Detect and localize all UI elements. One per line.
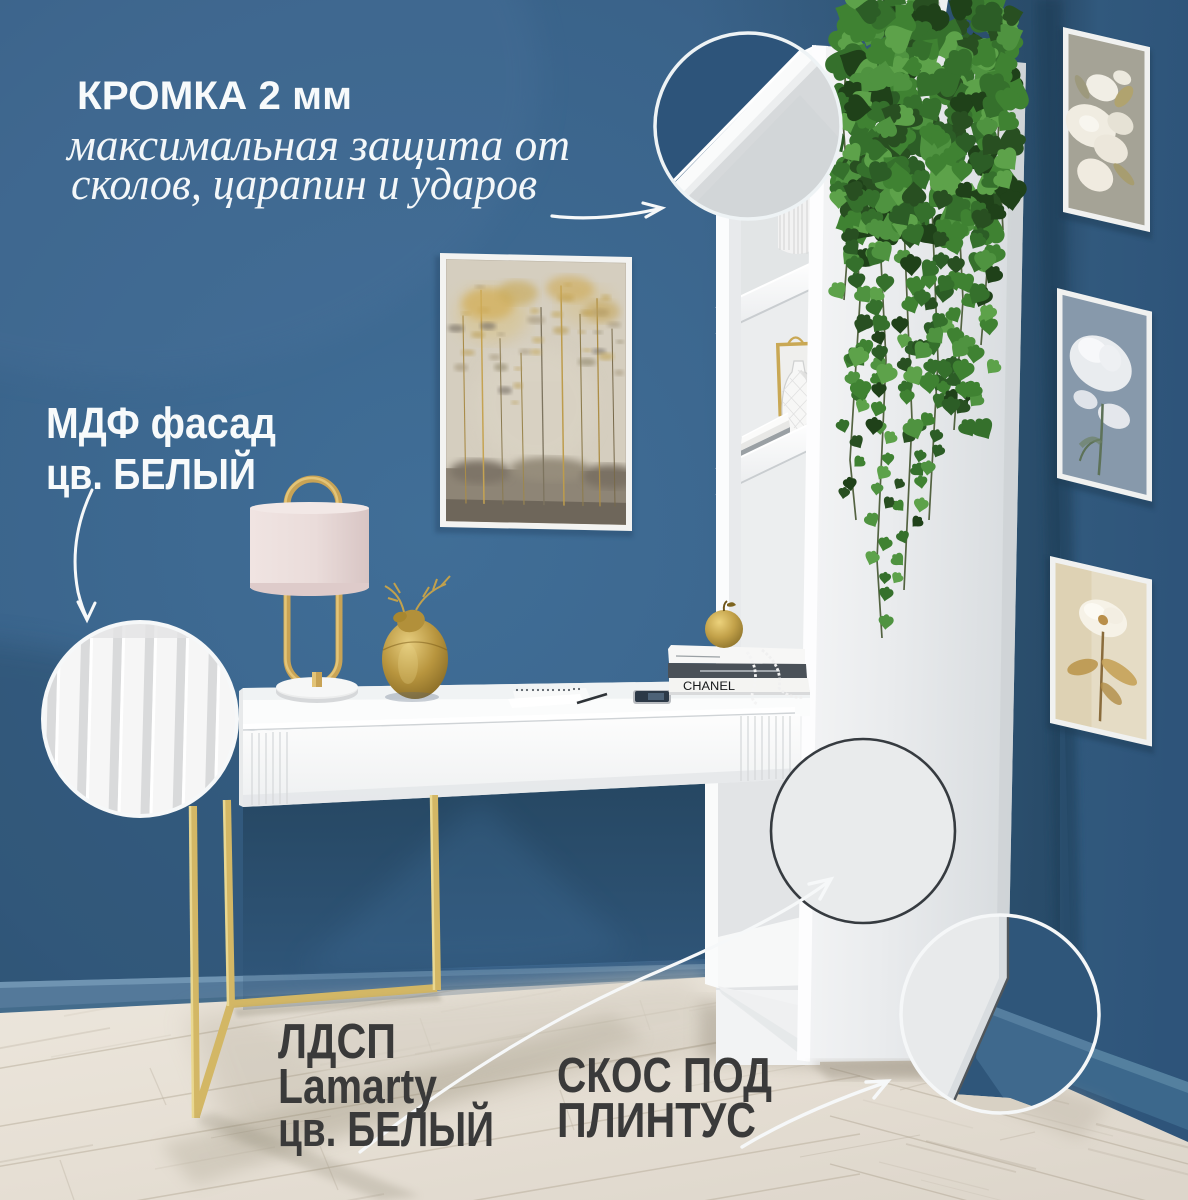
svg-text:КРОМКА 2 мм: КРОМКА 2 мм	[77, 74, 352, 118]
svg-text:МДФ фасад: МДФ фасад	[46, 399, 276, 448]
svg-text:ПЛИНТУС: ПЛИНТУС	[557, 1094, 756, 1148]
svg-text:цв. БЕЛЫЙ: цв. БЕЛЫЙ	[46, 448, 256, 499]
svg-text:CHANEL: CHANEL	[683, 681, 736, 693]
svg-text:цв. БЕЛЫЙ: цв. БЕЛЫЙ	[278, 1102, 494, 1157]
svg-text:сколов, царапин и ударов: сколов, царапин и ударов	[71, 159, 537, 209]
